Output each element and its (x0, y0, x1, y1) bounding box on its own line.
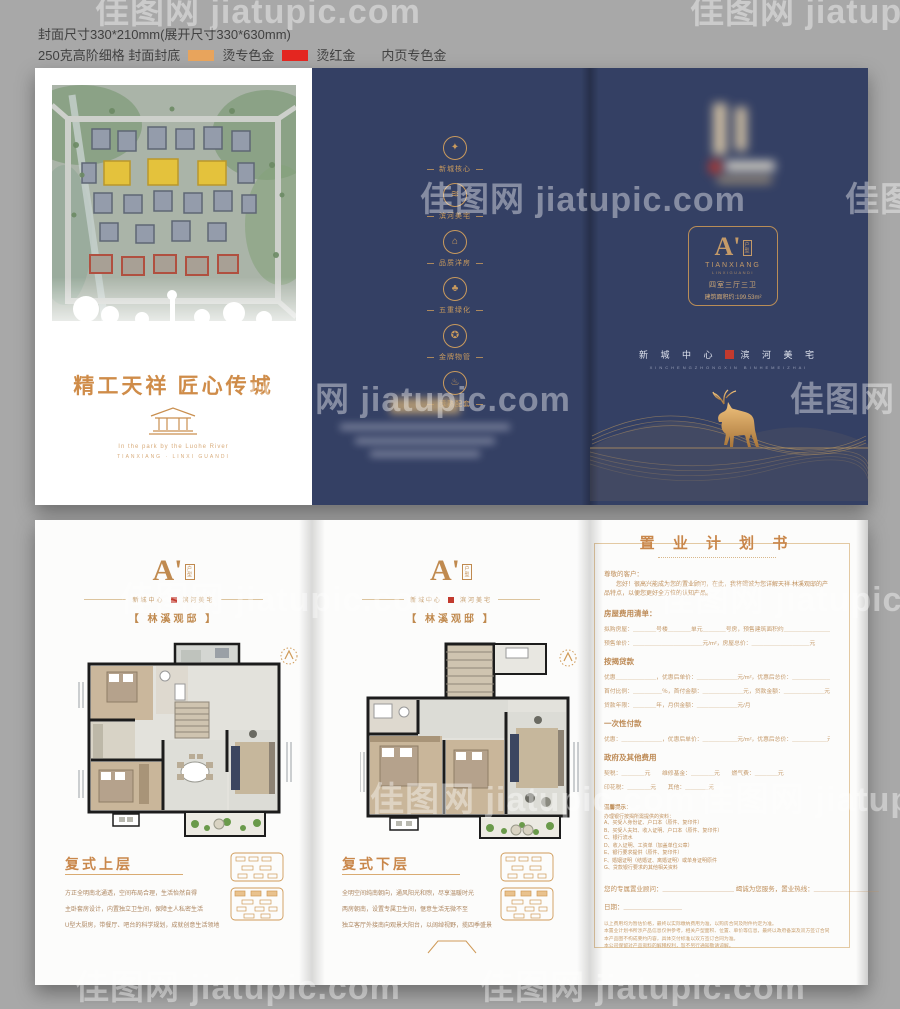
cover-front-panel: 精工天祥 匠心传城 In the park by the Luohe River… (35, 68, 312, 505)
cover-slogan: 新 城 中 心 滨 河 美 宅 (590, 348, 868, 361)
dash (427, 310, 434, 311)
dash (476, 169, 483, 170)
emblem-letter: A' (715, 234, 741, 260)
emblem-side-chars: 户型 (185, 564, 195, 580)
desc-line: 独立客厅外接南向观景大阳台，以阔绰视野，揽四季盛景 (342, 918, 492, 934)
red-foil-label: 烫红金 (316, 45, 355, 66)
inner-page-label: 内页专色金 (381, 45, 446, 66)
emblem-subname-en: LINXIGUANDI (712, 270, 754, 275)
mini-floorplate (500, 887, 554, 921)
mini-floorplate (500, 852, 554, 882)
dash (476, 216, 483, 217)
tip-item: B、买受人夫妇、收入证明、户口本（原件、复印件） (604, 828, 830, 836)
form-blank-row[interactable]: 优惠＿＿＿＿＿＿＿，优惠后单价：＿＿＿＿＿＿＿元/m²，优惠后总价：＿＿＿＿＿＿… (604, 672, 830, 681)
emblem-side-chars: 户型 (462, 564, 472, 580)
compass-icon (281, 648, 297, 664)
desc-line: 全明空间纯南朝向，通风阳光和煦，尽享温暖时光 (342, 886, 492, 902)
red-seal-icon (725, 350, 734, 359)
rule-line (498, 599, 540, 600)
section-description: 方正全明南北通透，空间布局合理，生活怡然自得 主卧套房设计，内置独立卫生间，保障… (65, 886, 219, 934)
floor-plan-lower (360, 642, 585, 842)
dash (476, 310, 483, 311)
form-blank-row[interactable]: 契税：＿＿＿＿元 维修基金：＿＿＿＿元 燃气费：＿＿＿＿元 (604, 768, 830, 777)
feature-item: ⌂ 品质洋房 (400, 230, 510, 268)
tagline-left: 新城中心 (410, 595, 442, 604)
medal-icon: ✪ (443, 324, 467, 348)
footnote: 本产品图不构成要约内容，具体交付标准以双方签订合同为准。 (604, 936, 830, 944)
house-icon: ⌂ (443, 230, 467, 254)
rule-line (221, 599, 263, 600)
dash (427, 263, 434, 264)
feature-item: ♣ 五重绿化 (400, 277, 510, 315)
tips-heading: 温馨提示： (604, 803, 830, 811)
emblem-side-chars: 户型 (743, 240, 752, 256)
project-name: 【 林溪观邸 】 (406, 610, 496, 625)
inner-page-upper-duplex: A' 户型 新城中心 滨河美宅 【 林溪观邸 】 (35, 520, 312, 985)
title-dotted-rule (658, 557, 776, 558)
tip-item: A、买受人身份证、户口本（原件、复印件） (604, 820, 830, 828)
emblem-letter: A' (430, 556, 460, 586)
desc-line: 方正全明南北通透，空间布局合理，生活怡然自得 (65, 886, 219, 902)
section-heading: 房屋费用清单： (604, 608, 830, 619)
form-title: 置 业 计 划 书 (604, 532, 830, 553)
dash (476, 263, 483, 264)
title-rule (65, 874, 183, 875)
tip-item: F、婚姻证明（结婚证、离婚证明）或单身证明原件 (604, 858, 830, 866)
inner-page-lower-duplex: A' 户型 新城中心 滨河美宅 【 林溪观邸 】 (312, 520, 590, 985)
feature-label: 新城核心 (439, 164, 471, 174)
pavilion-icon (145, 406, 201, 436)
desc-line: 主卧套房设计，内置独立卫生间，保障主人私密生活 (65, 902, 219, 918)
dash (427, 216, 434, 217)
fold-notch-mark (424, 940, 480, 954)
tagline-right: 滨河美宅 (183, 595, 215, 604)
page-header: A' 户型 新城中心 滨河美宅 【 林溪观邸 】 (35, 556, 312, 625)
form-blank-row[interactable]: 预售单价：＿＿＿＿＿＿＿＿＿＿＿＿元/m²，房屋总价：＿＿＿＿＿＿＿＿＿＿元 (604, 638, 830, 647)
design-mockup-canvas: { "meta": { "spec_line1": "封面尺寸330*210mm… (0, 0, 900, 999)
print-spec: 封面尺寸330*210mm(展开尺寸330*630mm) 250克高阶细格 封面… (38, 24, 446, 66)
feature-label: 滨河美宅 (439, 211, 471, 221)
mini-floorplate (230, 887, 284, 921)
section-heading: 政府及其他费用 (604, 752, 830, 763)
tips-subheading: 办理银行按揭所需提供的资料： (604, 813, 830, 820)
emblem-name-en: TIANXIANG (705, 262, 761, 269)
red-seal-icon (448, 597, 454, 603)
tree-icon: ♣ (443, 277, 467, 301)
mini-floorplate-diagrams (500, 852, 554, 921)
mini-floorplate-diagrams (230, 852, 284, 921)
dash (427, 169, 434, 170)
feature-label: 品质洋房 (439, 258, 471, 268)
unit-area: 建筑面积约:199.53m² (704, 292, 761, 301)
section-heading: 按揭贷款 (604, 656, 830, 667)
unit-type: 四室三厅三卫 (709, 280, 757, 290)
fold-crease (577, 520, 603, 985)
footnote: 以上费用均为暂估价格，最终以实际缴纳费用为准，以购房合同及附件约定为准。 (604, 921, 830, 929)
advisor-line[interactable]: 您的专属置业顾问：＿＿＿＿＿＿＿＿＿＿＿ 竭诚为您服务，置业热线：＿＿＿＿＿＿＿… (604, 883, 830, 893)
aerial-render-image (52, 85, 296, 337)
form-blank-row[interactable]: 首付比例：＿＿＿＿＿％，首付金额：＿＿＿＿＿＿＿元，贷款金额：＿＿＿＿＿＿＿元 (604, 686, 830, 695)
page-header: A' 户型 新城中心 滨河美宅 【 林溪观邸 】 (312, 556, 590, 625)
spec-line-size: 封面尺寸330*210mm(展开尺寸330*630mm) (38, 24, 446, 45)
deer-graphic (590, 376, 868, 501)
title-rule (342, 874, 460, 875)
intro-paragraph: 您好！很高兴能成为您的置业顾问，在此，我将竭诚为您详解天祥·林溪观邸的产品特点，… (604, 581, 830, 599)
flame-icon: ✦ (443, 136, 467, 160)
feature-item: ✦ 新城核心 (400, 136, 510, 174)
cover-spread: 精工天祥 匠心传城 In the park by the Luohe River… (35, 68, 868, 505)
feature-list: ✦ 新城核心 ≋ 滨河美宅 ⌂ 品质洋房 ♣ 五重绿化 ✪ 金牌物管 ♨ 醇熟配… (400, 136, 510, 409)
section-description: 全明空间纯南朝向，通风阳光和煦，尽享温暖时光 两房朝南，设置专属卫生间，惬意生活… (342, 886, 492, 934)
feature-label: 金牌物管 (439, 352, 471, 362)
tip-item: D、收入证明、工资单（加盖单位公章） (604, 843, 830, 851)
compass-icon (560, 650, 576, 666)
footnotes: 以上费用均为暂估价格，最终以实际缴纳费用为准，以购房合同及附件约定为准。 本置业… (604, 921, 830, 951)
rule-line (84, 599, 126, 600)
footnote: 本公司保留对产品资料的解释权利，恕不另行通知敬请谅解。 (604, 943, 830, 951)
spec-line-process: 250克高阶细格 封面封底 烫专色金 烫红金 内页专色金 (38, 45, 446, 66)
form-blank-row[interactable]: 优惠：＿＿＿＿＿＿＿，优惠后单价：＿＿＿＿＿＿元/m²，优惠后总价：＿＿＿＿＿＿… (604, 734, 830, 743)
inner-page-purchase-plan: 置 业 计 划 书 尊敬的客户： 您好！很高兴能成为您的置业顾问，在此，我将竭诚… (590, 520, 868, 985)
purchase-plan-form: 置 业 计 划 书 尊敬的客户： 您好！很高兴能成为您的置业顾问，在此，我将竭诚… (604, 532, 830, 951)
rule-line (362, 599, 404, 600)
gold-swatch (188, 50, 214, 61)
form-blank-row[interactable]: 印花税：＿＿＿＿元 其他：＿＿＿＿元 (604, 782, 830, 791)
red-swatch (282, 50, 308, 61)
feature-item: ≋ 滨河美宅 (400, 183, 510, 221)
mountain-icon: ≋ (443, 183, 467, 207)
watermark: 佳图网 jiatupic.com (690, 0, 900, 33)
date-line[interactable]: 日期：＿＿＿＿＿＿＿＿＿ (604, 901, 830, 911)
section-title-upper: 复式上层 (65, 854, 133, 874)
amenity-icon: ♨ (443, 371, 467, 395)
spec-paper-text: 250克高阶细格 封面封底 (38, 45, 180, 66)
dash (427, 357, 434, 358)
tip-item: C、银行流水 (604, 835, 830, 843)
slogan-left: 新 城 中 心 (639, 348, 718, 361)
form-blank-row[interactable]: 贷款年限：＿＿＿＿年，月供金额：＿＿＿＿＿＿＿元/月 (604, 700, 830, 709)
tip-item: E、银行要求提供（原件、复印件） (604, 850, 830, 858)
feature-item: ✪ 金牌物管 (400, 324, 510, 362)
feature-label: 五重绿化 (439, 305, 471, 315)
slogan-right: 滨 河 美 宅 (741, 348, 820, 361)
floor-plan-upper (77, 642, 302, 842)
cover-title: 精工天祥 匠心传城 (35, 370, 312, 400)
salutation: 尊敬的客户： (604, 568, 830, 578)
section-title-lower: 复式下层 (342, 854, 410, 874)
cover-subtitle-en: In the park by the Luohe River (35, 444, 312, 450)
form-blank-row[interactable]: 拟购房屋：＿＿＿＿号楼＿＿＿＿单元＿＿＿＿号房，预售建筑面积约＿＿＿＿＿＿＿＿m… (604, 624, 830, 633)
desc-line: 两房朝南，设置专属卫生间，惬意生活无微不至 (342, 902, 492, 918)
blurred-contact-info (330, 398, 520, 462)
unit-emblem: A' 户型 TIANXIANG LINXIGUANDI 四室三厅三卫 建筑面积约… (688, 226, 778, 306)
cover-subtitle-en2: TIANXIANG · LINXI GUANDI (35, 454, 312, 460)
section-heading: 一次性付款 (604, 718, 830, 729)
fold-crease (299, 520, 325, 985)
project-name: 【 林溪观邸 】 (129, 610, 219, 625)
footnote: 本置业计划书所涉产品信息仅供参考，相关户型面积、位置、单价等信息，最终以政府备案… (604, 928, 830, 936)
tagline-left: 新城中心 (132, 595, 164, 604)
inner-spread: A' 户型 新城中心 滨河美宅 【 林溪观邸 】 (35, 520, 868, 985)
spec-size-text: 封面尺寸330*210mm(展开尺寸330*630mm) (38, 24, 291, 45)
tip-item: G、贷款银行要求的其他相关资料 (604, 865, 830, 873)
cover-slogan-en: XINCHENGZHONGXIN BINHEMEIZHAI (590, 365, 868, 370)
blurred-brand-logo (695, 103, 790, 191)
emblem-letter: A' (153, 556, 183, 586)
tagline-right: 滨河美宅 (460, 595, 492, 604)
dash (476, 357, 483, 358)
gold-foil-label: 烫专色金 (222, 45, 274, 66)
cover-navy-panels: ✦ 新城核心 ≋ 滨河美宅 ⌂ 品质洋房 ♣ 五重绿化 ✪ 金牌物管 ♨ 醇熟配… (312, 68, 868, 505)
desc-line: U型大厨房，带餐厅、吧台的科学规划，成就创意生活领地 (65, 918, 219, 934)
red-seal-icon (171, 597, 177, 603)
mini-floorplate (230, 852, 284, 882)
